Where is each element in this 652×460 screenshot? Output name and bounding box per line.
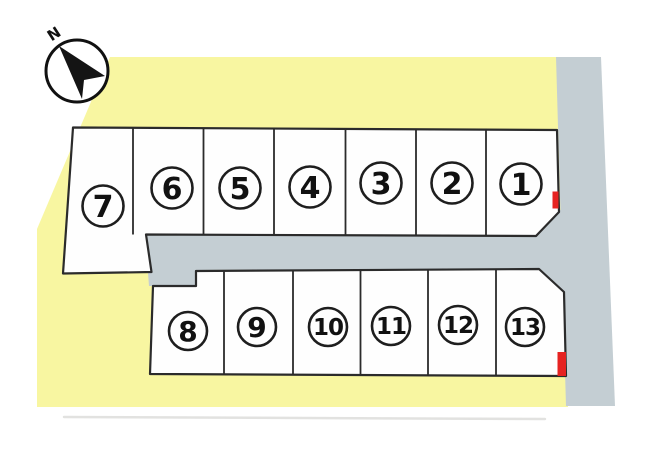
compass-north-label: N [44, 23, 64, 45]
lot-map-svg: 7 6 5 4 3 2 1 8 [0, 0, 652, 460]
scan-artifact-line [64, 417, 545, 419]
plot-3-number: 3 [371, 167, 392, 202]
plot-13-number: 13 [510, 315, 540, 341]
plot-4-number: 4 [300, 171, 321, 206]
plot-1-number: 1 [511, 168, 532, 203]
plot-6-number: 6 [162, 172, 183, 207]
plot-5-number: 5 [230, 172, 251, 207]
compass: N [44, 23, 108, 102]
lower-plot-block [150, 269, 566, 376]
plot-12-number: 12 [443, 313, 473, 339]
plot-8-number: 8 [178, 315, 197, 348]
lot-map-canvas: 7 6 5 4 3 2 1 8 [0, 0, 652, 460]
red-marker-plot-13 [558, 352, 567, 376]
red-marker-plot-1 [553, 192, 559, 209]
plot-11-number: 11 [376, 314, 406, 340]
plot-9-number: 9 [247, 311, 266, 344]
plot-2-number: 2 [442, 167, 463, 202]
plot-10-number: 10 [313, 315, 343, 341]
plot-7-number: 7 [93, 190, 114, 225]
